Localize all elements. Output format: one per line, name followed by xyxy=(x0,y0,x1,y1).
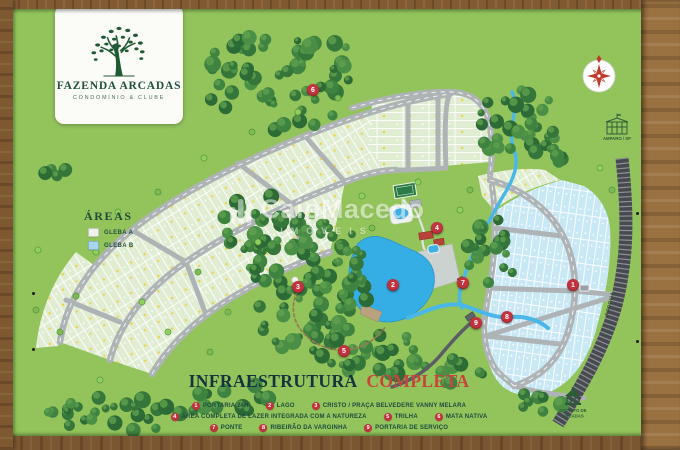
wood-frame-top xyxy=(0,0,680,9)
gleba-b-swatch xyxy=(88,241,99,250)
legend-label: MATA NATIVA xyxy=(446,414,488,420)
legend-label: CRISTO / PRAÇA BELVEDERE VANNY MELARA xyxy=(323,403,466,409)
wood-frame-right xyxy=(641,0,680,450)
legend-item: 1PORTARIA 24H xyxy=(192,402,249,410)
map-marker-ponte: 7 xyxy=(457,277,469,289)
map-marker-lago: 2 xyxy=(387,279,399,291)
city-label: AMPARO / SP xyxy=(603,136,631,141)
infrastructure-legend: 1PORTARIA 24H 2LAGO 3CRISTO / PRAÇA BELV… xyxy=(0,402,658,432)
wood-frame-bottom xyxy=(0,436,680,450)
legend-num: 2 xyxy=(266,402,274,410)
legend-num: 8 xyxy=(259,424,267,432)
logo-subtitle: CONDOMÍNIO & CLUBE xyxy=(73,95,165,101)
map-marker-area-lazer: 4 xyxy=(431,222,443,234)
legend-label: PORTARIA DE SERVIÇO xyxy=(375,425,448,431)
legend-item: 7PONTE xyxy=(210,424,243,432)
legend-label: TRILHA xyxy=(395,414,418,420)
legend-label: LAGO xyxy=(277,403,295,409)
logo-tree-icon xyxy=(82,13,156,77)
legend-item: 6MATA NATIVA xyxy=(435,413,488,421)
screw xyxy=(32,348,35,351)
legend-label: PORTARIA 24H xyxy=(203,403,249,409)
page-title: INFRAESTRUTURA COMPLETA xyxy=(0,371,658,392)
legend-label: ÁREA COMPLETA DE LAZER INTEGRADA COM A N… xyxy=(182,414,367,420)
legend-item: 8RIBEIRÃO DA VARGINHA xyxy=(259,424,347,432)
screw xyxy=(636,340,639,343)
legend-item: 2LAGO xyxy=(266,402,295,410)
areas-legend: ÁREAS GLEBA A GLEBA B xyxy=(84,209,134,250)
map-marker-cristo-praca: 3 xyxy=(292,281,304,293)
legend-num: 5 xyxy=(384,413,392,421)
main-gate-icon xyxy=(580,285,589,291)
legend-num: 9 xyxy=(364,424,372,432)
title-accent: COMPLETA xyxy=(366,371,469,391)
areas-item-gleba-a: GLEBA A xyxy=(88,228,134,237)
legend-item: 9PORTARIA DE SERVIÇO xyxy=(364,424,448,432)
logo-card: FAZENDA ARCADAS CONDOMÍNIO & CLUBE xyxy=(55,5,183,124)
map-marker-portaria-servico: 9 xyxy=(470,317,482,329)
legend-label: PONTE xyxy=(221,425,243,431)
wood-frame-left xyxy=(0,0,13,450)
legend-item: 3CRISTO / PRAÇA BELVEDERE VANNY MELARA xyxy=(312,402,466,410)
gleba-b-label: GLEBA B xyxy=(104,243,134,249)
gleba-a-label: GLEBA A xyxy=(104,230,133,236)
screw xyxy=(32,292,35,295)
map-marker-trilha: 5 xyxy=(338,345,350,357)
areas-item-gleba-b: GLEBA B xyxy=(88,241,134,250)
gleba-a-swatch xyxy=(88,228,99,237)
logo-title: FAZENDA ARCADAS xyxy=(57,80,182,92)
legend-label: RIBEIRÃO DA VARGINHA xyxy=(270,425,347,431)
title-main: INFRAESTRUTURA xyxy=(189,371,357,391)
legend-num: 1 xyxy=(192,402,200,410)
legend-num: 6 xyxy=(435,413,443,421)
screw xyxy=(636,212,639,215)
legend-item: 4ÁREA COMPLETA DE LAZER INTEGRADA COM A … xyxy=(171,413,367,421)
legend-item: 5TRILHA xyxy=(384,413,418,421)
legend-num: 3 xyxy=(312,402,320,410)
legend-num: 7 xyxy=(210,424,218,432)
map-marker-mata-nativa: 6 xyxy=(307,84,319,96)
legend-num: 4 xyxy=(171,413,179,421)
map-marker-portaria-24h: 1 xyxy=(567,279,579,291)
areas-title: ÁREAS xyxy=(84,209,134,224)
map-marker-ribeirao: 8 xyxy=(501,311,513,323)
